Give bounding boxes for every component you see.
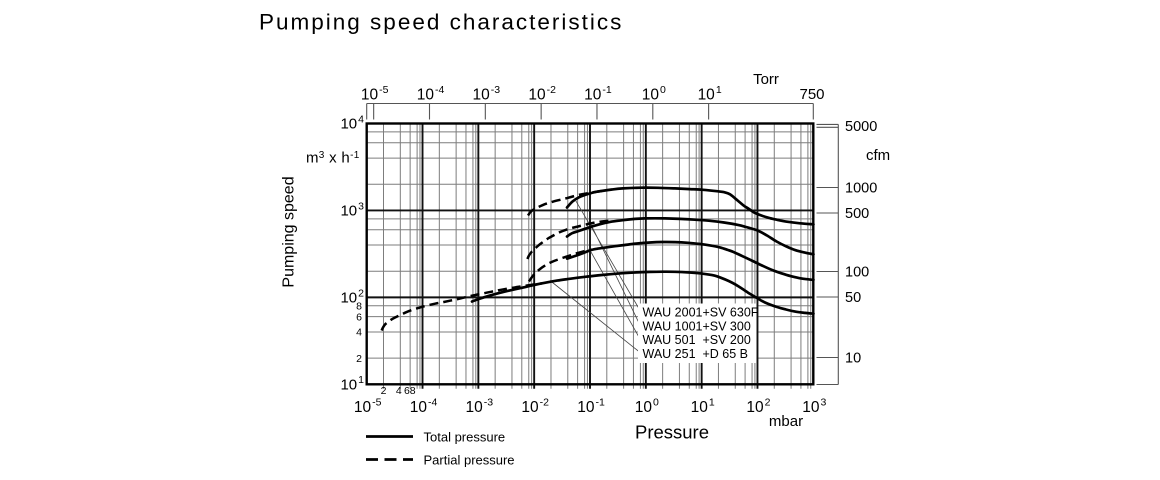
svg-text:Total pressure: Total pressure — [424, 430, 506, 445]
svg-text:Torr: Torr — [753, 71, 779, 88]
svg-text:WAU 251 +D 65 B: WAU 251 +D 65 B — [643, 347, 749, 361]
svg-text:Pumping speed: Pumping speed — [281, 176, 298, 287]
svg-text:Partial pressure: Partial pressure — [424, 453, 515, 468]
svg-text:1000: 1000 — [845, 181, 877, 197]
svg-text:8: 8 — [356, 300, 362, 312]
svg-text:WAU 1001+SV 300: WAU 1001+SV 300 — [643, 319, 751, 333]
svg-text:100: 100 — [845, 265, 869, 281]
svg-text:WAU 2001+SV 630F: WAU 2001+SV 630F — [643, 306, 759, 320]
svg-text:Pumping speed characteristics: Pumping speed characteristics — [259, 10, 623, 35]
svg-text:4: 4 — [396, 385, 402, 397]
svg-text:10: 10 — [845, 351, 861, 367]
svg-text:mbar: mbar — [769, 413, 803, 430]
svg-text:WAU 501 +SV 200: WAU 501 +SV 200 — [643, 333, 751, 347]
svg-text:750: 750 — [799, 86, 824, 103]
svg-text:cfm: cfm — [866, 147, 890, 164]
svg-text:2: 2 — [356, 353, 362, 365]
svg-text:6: 6 — [356, 311, 362, 323]
svg-text:5000: 5000 — [845, 119, 877, 135]
svg-text:8: 8 — [410, 385, 416, 397]
svg-text:4: 4 — [356, 327, 362, 339]
svg-text:50: 50 — [845, 290, 861, 306]
svg-text:Pressure: Pressure — [635, 422, 709, 443]
svg-text:2: 2 — [381, 385, 387, 397]
svg-text:500: 500 — [845, 206, 869, 222]
